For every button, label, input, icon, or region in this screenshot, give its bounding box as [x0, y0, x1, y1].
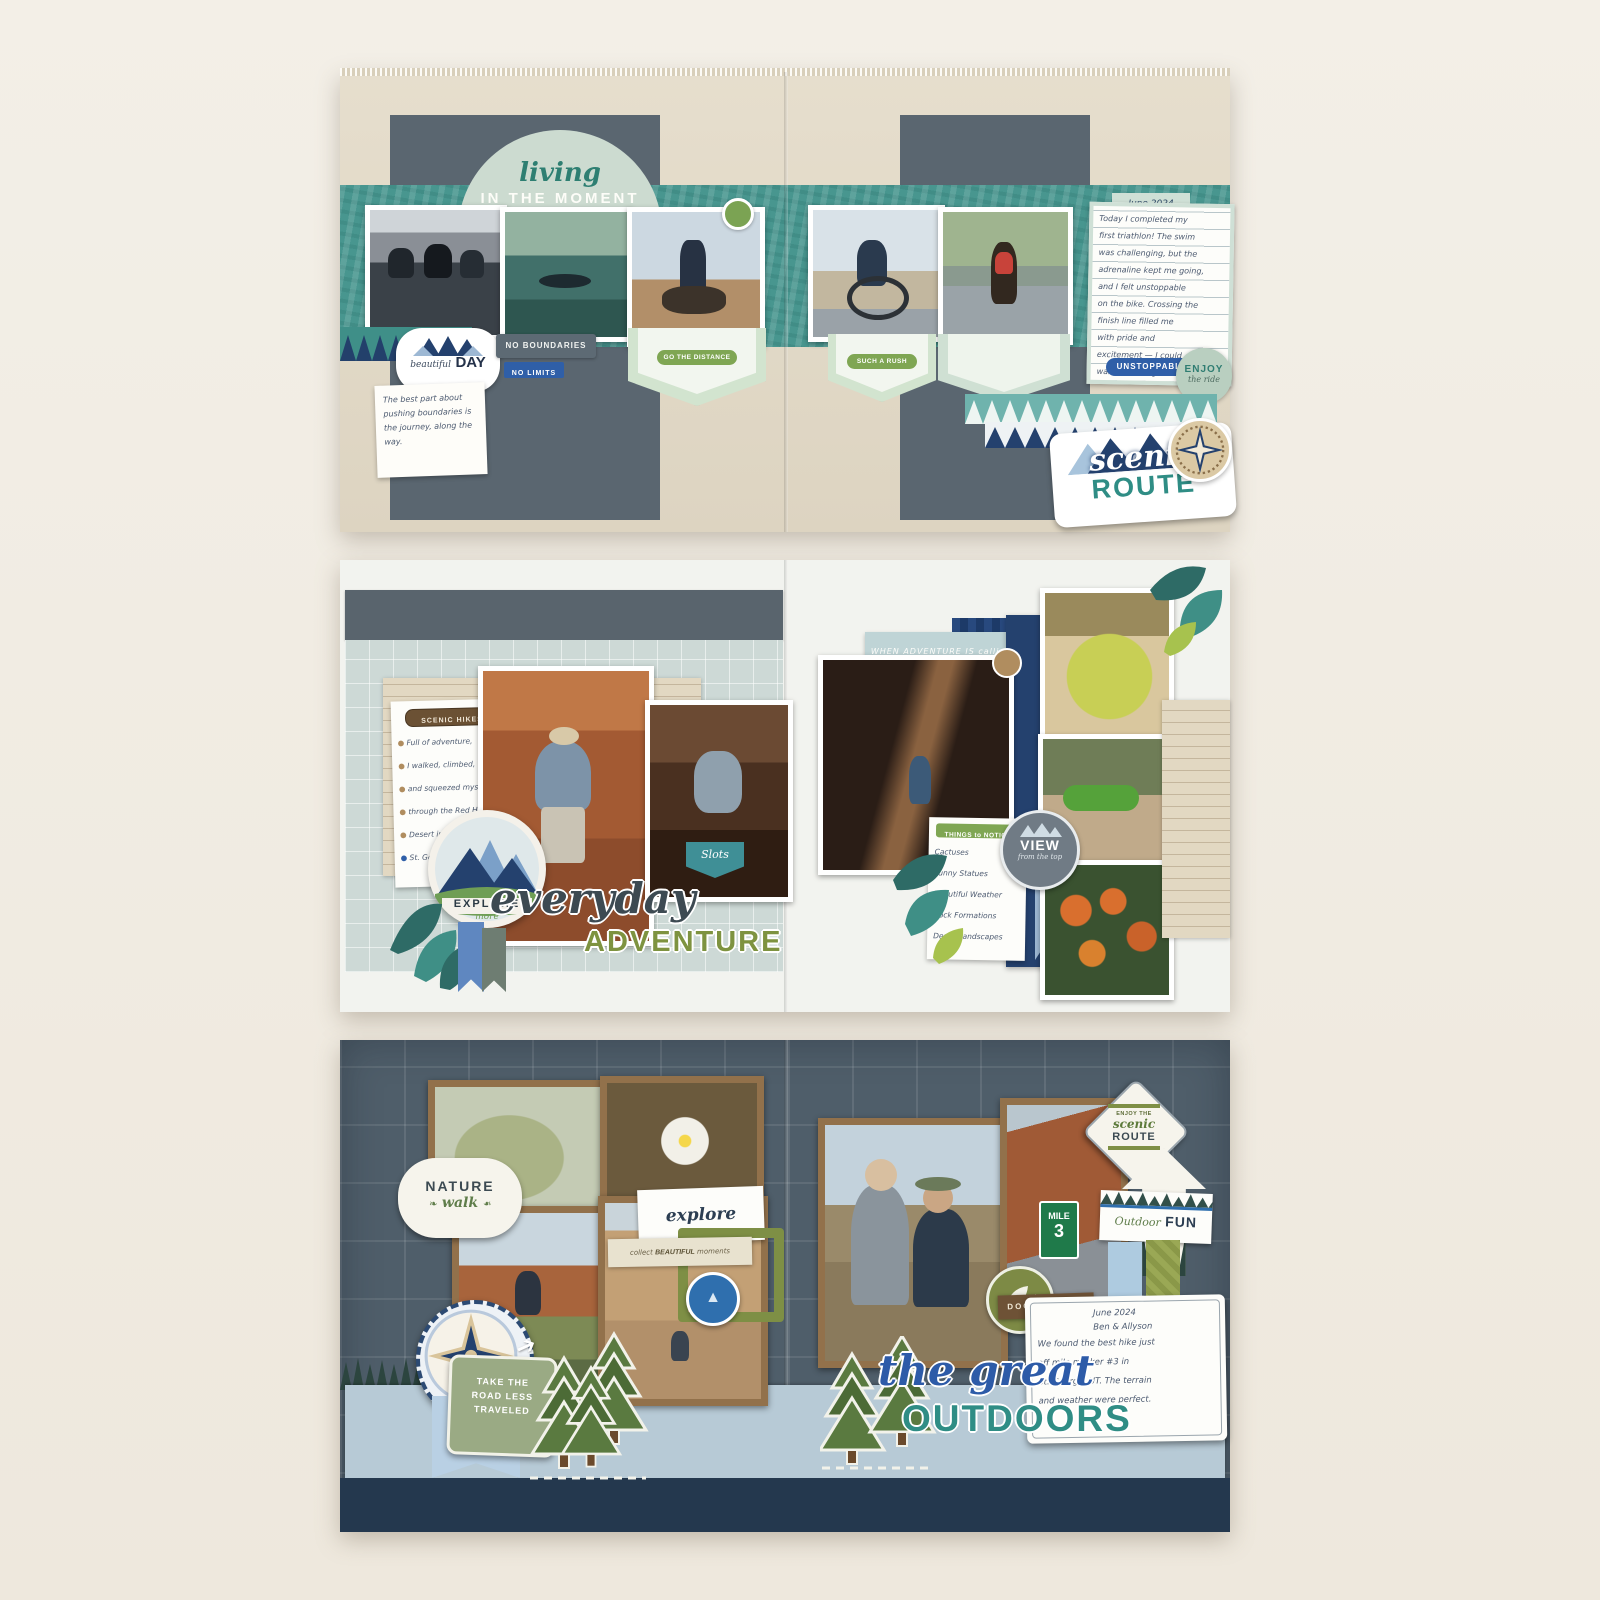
photo-runner: [938, 207, 1073, 345]
compass-badge: [1168, 418, 1232, 482]
climber-figure: [535, 741, 591, 811]
hiker-figure: [909, 756, 931, 804]
scrapbook-spread-outdoors: NATURE ❧ walk ❧ explore collect BEAUTIFU…: [340, 1040, 1230, 1532]
journal-line: first triathlon! The swim: [1099, 227, 1224, 246]
outdoor-fun-tag: Outdoor FUN: [1099, 1190, 1213, 1244]
leaves-icon: [885, 846, 969, 964]
bullet-icon: ●: [399, 784, 406, 793]
compass-icon: [1171, 421, 1229, 479]
journal-line: was challenging, but the: [1099, 244, 1224, 263]
pill-go-the-distance: GO THE DISTANCE: [657, 350, 737, 365]
hiker-figure: [671, 1331, 689, 1361]
everyday-script: everyday: [490, 874, 695, 923]
journal-line: Today I completed my: [1099, 210, 1224, 229]
leaf-icon: ❧: [483, 1199, 491, 1210]
pill-such-a-rush: SUCH A RUSH: [847, 354, 917, 369]
no-limits-tag: NO LIMITS: [504, 362, 564, 378]
slate-band: [345, 590, 783, 640]
sun-hat: [915, 1177, 961, 1191]
scrapbook-spread-triathlon: living IN THE MOMENT June 2024 Today I c…: [340, 72, 1230, 532]
photo-river-swim: [500, 207, 632, 342]
bullet-icon: ●: [398, 738, 405, 747]
bullet-icon: ●: [401, 853, 408, 862]
mountain-icon: ▲: [705, 1289, 721, 1306]
leaf-icon: ❧: [429, 1199, 437, 1210]
blue-marker-badge: ▲: [686, 1272, 740, 1326]
caterpillar-statue: [1063, 785, 1139, 811]
leaf-dot-badge: [722, 198, 754, 230]
outdoors-caps: OUTDOORS: [902, 1398, 1132, 1440]
navy-bottom-band: [340, 1478, 1230, 1532]
bullet-icon: ●: [398, 761, 405, 770]
note-text: The best part about pushing boundaries i…: [383, 390, 479, 449]
journal-line: with pride and: [1097, 329, 1222, 348]
photo-cyclist-road: [808, 205, 945, 342]
spread-fold: [784, 72, 788, 532]
bullet-icon: ●: [400, 830, 407, 839]
leaves-icon: [1140, 560, 1230, 656]
mile-3-sign: MILE 3: [1039, 1201, 1079, 1259]
adventure-caps: ADVENTURE: [584, 926, 782, 959]
photo-swim-start: [365, 205, 507, 340]
view-badge: VIEW from the top: [1000, 810, 1080, 890]
nature-walk-badge: NATURE ❧ walk ❧: [398, 1158, 522, 1238]
kraft-dot: [992, 648, 1022, 678]
the-great-script: the great: [878, 1346, 1094, 1395]
photo-couple: [818, 1118, 1008, 1368]
pine-trees-icon: [528, 1328, 650, 1488]
mountains-icon: [413, 334, 483, 356]
journal-line: on the bike. Crossing the: [1098, 295, 1223, 314]
ribbon-grey: [482, 928, 506, 992]
bullet-icon: ●: [399, 807, 406, 816]
hiker-figure: [694, 751, 742, 813]
journal-line: finish line filled me: [1097, 312, 1222, 331]
title-script: living: [458, 158, 662, 188]
mountains-icon: [1018, 823, 1062, 837]
man-figure: [851, 1185, 909, 1305]
script-paper-right: [1162, 700, 1230, 938]
journal-line: adrenaline kept me going,: [1098, 261, 1223, 280]
scrapbook-spread-adventure: SCENIC HIKES ● Full of adventure, ● I wa…: [340, 560, 1230, 1012]
mountain-row-icon: [965, 394, 1217, 424]
woman-figure: [913, 1209, 969, 1307]
journal-line: and I felt unstoppable: [1098, 278, 1223, 297]
washi-teal-mountains: [965, 394, 1217, 424]
no-boundaries-tag: NO BOUNDARIES: [496, 334, 596, 358]
collect-moments-tag: collect BEAUTIFUL moments: [608, 1237, 752, 1268]
note-card: The best part about pushing boundaries i…: [374, 382, 487, 478]
